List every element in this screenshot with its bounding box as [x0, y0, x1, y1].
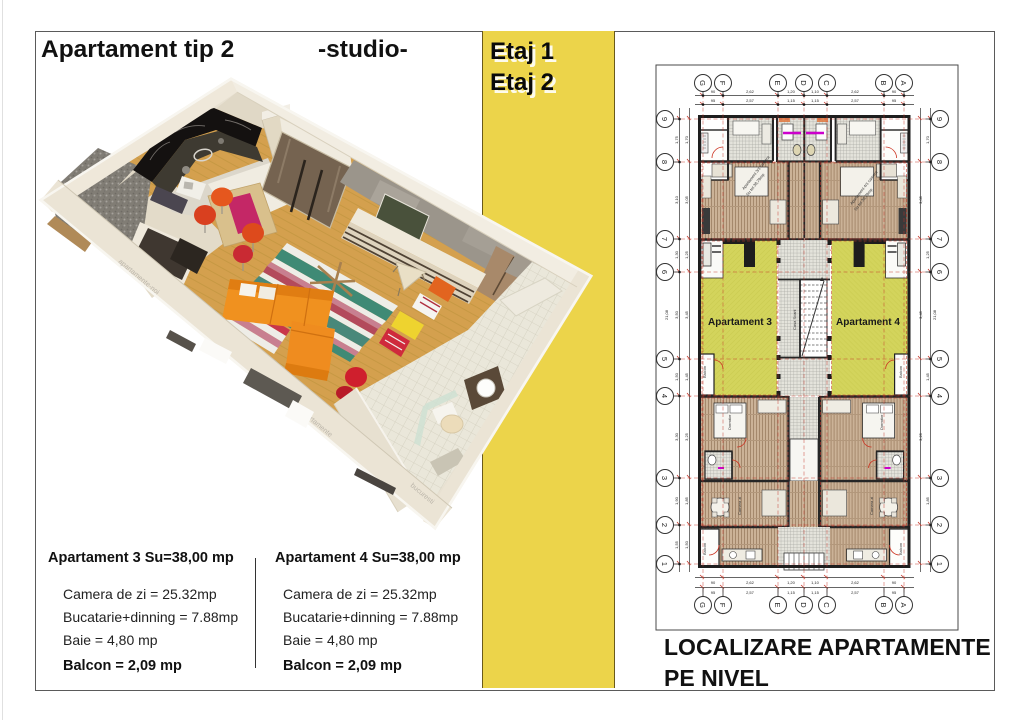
svg-text:1,25: 1,25	[925, 250, 930, 259]
svg-text:Balcon: Balcon	[898, 366, 903, 378]
svg-text:3,30: 3,30	[674, 432, 679, 441]
svg-text:1,15: 1,15	[787, 590, 796, 595]
svg-text:1,45: 1,45	[684, 372, 689, 381]
svg-text:8: 8	[660, 160, 669, 164]
svg-text:95: 95	[711, 590, 716, 595]
svg-text:7: 7	[935, 237, 944, 241]
svg-text:F: F	[718, 81, 727, 86]
svg-text:3: 3	[935, 476, 944, 480]
svg-text:4: 4	[935, 394, 944, 398]
svg-text:1,85: 1,85	[684, 496, 689, 505]
svg-text:9: 9	[935, 117, 944, 121]
svg-text:5: 5	[935, 357, 944, 361]
svg-text:3,05: 3,05	[684, 195, 689, 204]
svg-text:1,25: 1,25	[684, 250, 689, 259]
svg-text:3,25: 3,25	[918, 432, 923, 441]
svg-text:2,62: 2,62	[746, 580, 755, 585]
svg-text:7: 7	[660, 237, 669, 241]
svg-text:Dormitor: Dormitor	[879, 414, 884, 430]
svg-text:E: E	[773, 602, 782, 607]
svg-text:21,08: 21,08	[932, 309, 937, 320]
svg-text:D: D	[799, 602, 808, 608]
svg-text:B: B	[879, 80, 888, 85]
svg-text:1,30: 1,30	[674, 250, 679, 259]
svg-text:1,10: 1,10	[811, 89, 820, 94]
svg-text:Balcon: Balcon	[702, 543, 707, 555]
svg-text:E: E	[773, 80, 782, 85]
svg-text:2,62: 2,62	[851, 580, 860, 585]
svg-text:1,85: 1,85	[925, 496, 930, 505]
svg-text:6: 6	[935, 270, 944, 274]
svg-text:2: 2	[935, 523, 944, 527]
svg-text:Camera zi: Camera zi	[737, 497, 742, 515]
svg-text:Camera zi: Camera zi	[869, 497, 874, 515]
svg-text:4: 4	[660, 394, 669, 398]
svg-text:2: 2	[660, 523, 669, 527]
svg-text:6: 6	[660, 270, 669, 274]
svg-text:Balcon: Balcon	[898, 543, 903, 555]
svg-text:1,45: 1,45	[925, 372, 930, 381]
svg-text:3,05: 3,05	[918, 195, 923, 204]
svg-text:1,70: 1,70	[925, 135, 930, 144]
svg-text:95: 95	[711, 98, 716, 103]
svg-text:2,62: 2,62	[851, 89, 860, 94]
svg-text:90: 90	[892, 580, 897, 585]
svg-text:90: 90	[892, 89, 897, 94]
svg-text:95: 95	[892, 590, 897, 595]
svg-text:1,50: 1,50	[684, 540, 689, 549]
svg-text:1,15: 1,15	[811, 590, 820, 595]
svg-text:F: F	[718, 603, 727, 608]
svg-text:G: G	[698, 80, 707, 86]
svg-text:2,57: 2,57	[851, 98, 860, 103]
svg-text:1,55: 1,55	[674, 540, 679, 549]
svg-text:B: B	[879, 602, 888, 607]
svg-text:3,45: 3,45	[684, 310, 689, 319]
svg-text:90: 90	[711, 89, 716, 94]
svg-text:Apartament 4: Apartament 4	[836, 317, 900, 328]
svg-text:2,62: 2,62	[746, 89, 755, 94]
svg-text:G: G	[698, 602, 707, 608]
svg-text:1,20: 1,20	[787, 580, 796, 585]
svg-text:3,25: 3,25	[684, 432, 689, 441]
svg-text:1: 1	[660, 562, 669, 566]
svg-text:90: 90	[711, 580, 716, 585]
svg-text:Casa Scarii: Casa Scarii	[792, 309, 797, 330]
svg-text:5: 5	[660, 357, 669, 361]
svg-text:A: A	[899, 80, 908, 85]
svg-text:1,90: 1,90	[674, 496, 679, 505]
svg-text:1,50: 1,50	[674, 372, 679, 381]
svg-text:1,15: 1,15	[787, 98, 796, 103]
svg-text:1,20: 1,20	[787, 89, 796, 94]
svg-text:Apartament 3: Apartament 3	[708, 317, 772, 328]
svg-text:95: 95	[892, 98, 897, 103]
svg-text:21,08: 21,08	[664, 309, 669, 320]
svg-text:Balcon: Balcon	[702, 366, 707, 378]
svg-text:2,57: 2,57	[746, 590, 755, 595]
svg-text:1,75: 1,75	[674, 135, 679, 144]
svg-text:3,45: 3,45	[918, 310, 923, 319]
svg-text:1,10: 1,10	[811, 580, 820, 585]
svg-text:9: 9	[660, 117, 669, 121]
svg-text:A: A	[899, 602, 908, 607]
svg-text:C: C	[822, 602, 831, 608]
svg-text:Dormitor: Dormitor	[727, 414, 732, 430]
svg-text:2,57: 2,57	[746, 98, 755, 103]
svg-text:3,10: 3,10	[674, 195, 679, 204]
svg-text:1,15: 1,15	[811, 98, 820, 103]
svg-text:D: D	[799, 80, 808, 86]
svg-text:3: 3	[660, 476, 669, 480]
svg-text:2,57: 2,57	[851, 590, 860, 595]
svg-text:1: 1	[935, 562, 944, 566]
svg-text:3,50: 3,50	[674, 310, 679, 319]
svg-text:C: C	[822, 80, 831, 86]
svg-text:1,70: 1,70	[684, 135, 689, 144]
svg-text:8: 8	[935, 160, 944, 164]
